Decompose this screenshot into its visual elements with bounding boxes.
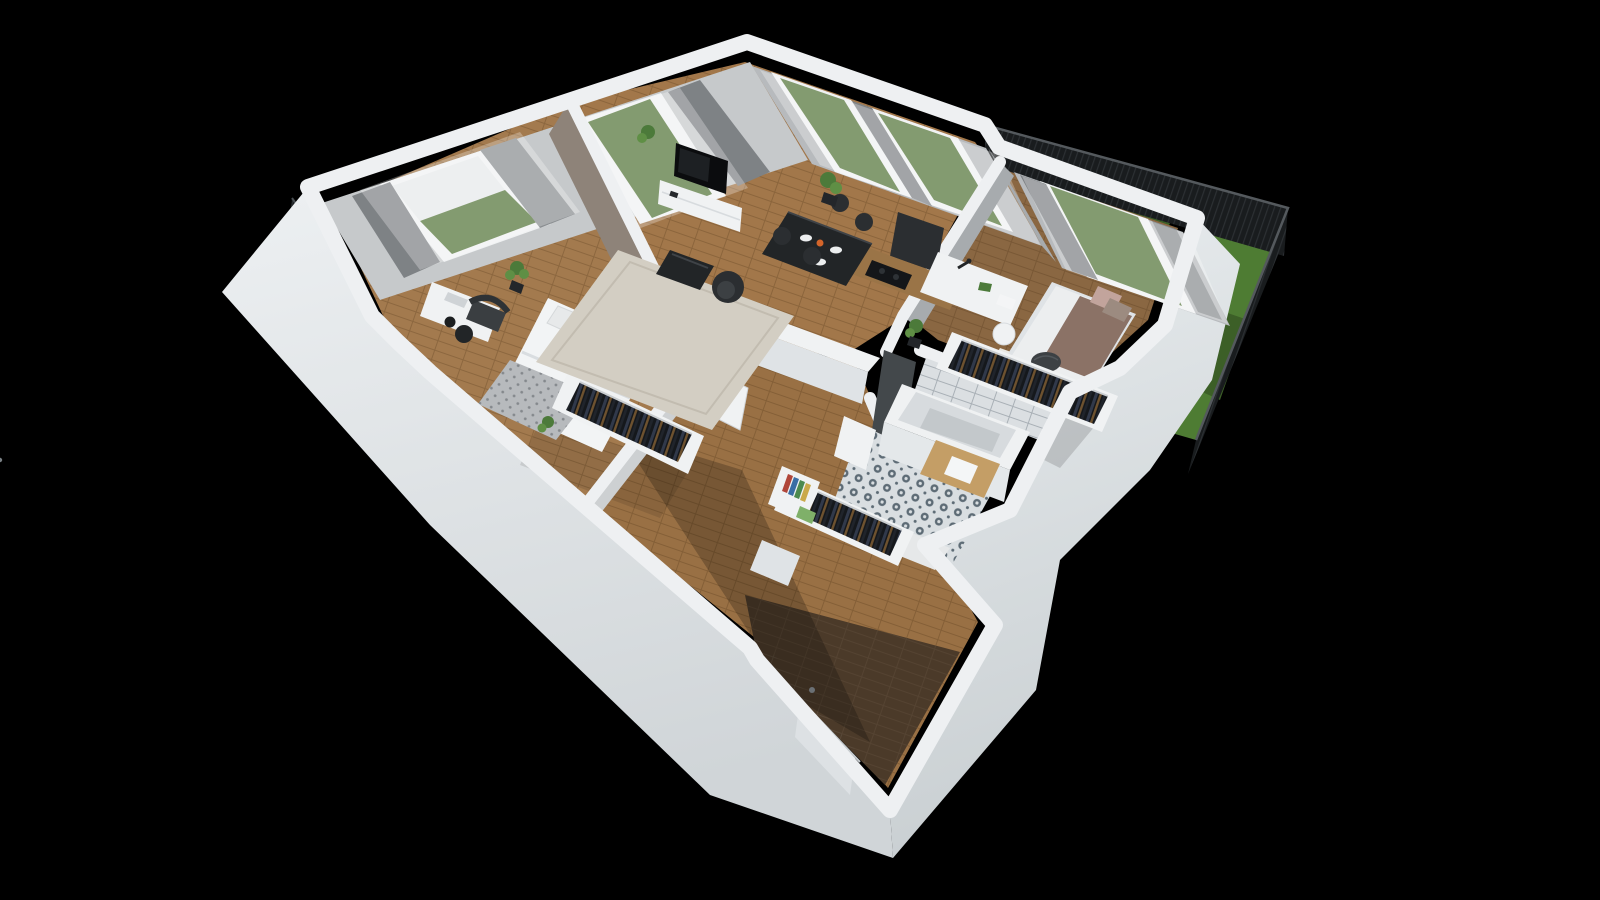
- bedroom2-plant: [905, 319, 923, 349]
- plant-leaves-5: [538, 424, 547, 433]
- plate-1: [800, 235, 812, 242]
- scene-canvas: [0, 0, 1600, 900]
- cooktop-burner: [879, 268, 885, 274]
- plant-leaves-2: [519, 269, 529, 279]
- floorplan-render-stage: [0, 0, 1600, 900]
- waste-bin: [445, 317, 456, 328]
- fruit-bowl: [817, 240, 824, 247]
- swivel-armchair-seat: [717, 281, 735, 299]
- dining-chair-2: [855, 213, 873, 231]
- cooktop-burner-2: [893, 274, 899, 280]
- dining-chair-4: [803, 247, 821, 265]
- desk-lamp-head: [967, 259, 972, 264]
- dining-chair-3: [773, 227, 791, 245]
- plant-leaves-7: [830, 182, 842, 194]
- sink-faucet: [0, 458, 2, 462]
- round-side-table: [455, 325, 473, 343]
- plant-leaves-3: [505, 270, 515, 280]
- bedroom2-chair: [993, 323, 1015, 345]
- entrance-door-handle: [809, 687, 815, 693]
- plant-leaves-9: [637, 133, 647, 143]
- plate-2: [830, 247, 842, 254]
